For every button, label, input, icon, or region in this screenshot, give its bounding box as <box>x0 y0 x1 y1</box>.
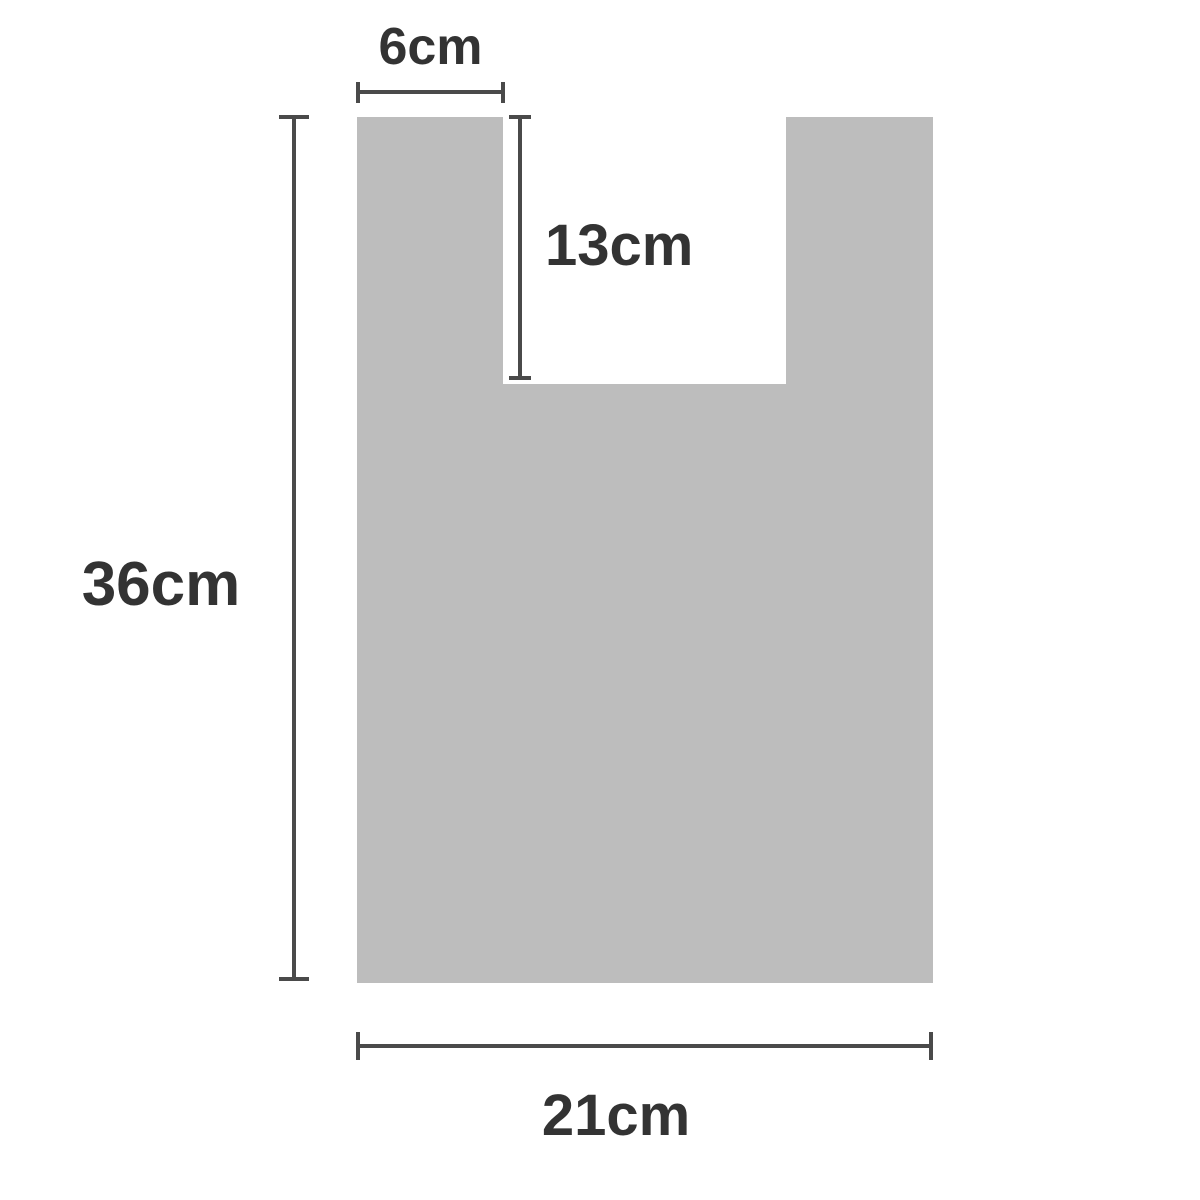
dim-bag-width-label: 21cm <box>516 1087 716 1145</box>
dim-handle-width-label: 6cm <box>358 21 503 73</box>
dim-handle-width-tick-left <box>356 82 360 103</box>
dim-bag-width-line <box>358 1044 931 1048</box>
dim-bag-height-tick-top <box>279 115 309 119</box>
dim-handle-cut-depth-line <box>518 117 522 380</box>
dim-handle-cut-depth-tick-bottom <box>509 376 531 380</box>
dim-bag-height-label: 36cm <box>61 554 261 616</box>
dim-handle-width-line <box>358 90 503 94</box>
dim-bag-width-tick-right <box>929 1032 933 1060</box>
dim-bag-height-line <box>292 117 296 981</box>
dim-handle-width-tick-right <box>501 82 505 103</box>
dim-bag-height-tick-bottom <box>279 977 309 981</box>
dim-handle-cut-depth-label: 13cm <box>545 217 693 275</box>
dim-bag-width-tick-left <box>356 1032 360 1060</box>
dimension-diagram-canvas: 6cm 13cm 36cm 21cm <box>0 0 1200 1200</box>
dim-handle-cut-depth-tick-top <box>509 115 531 119</box>
